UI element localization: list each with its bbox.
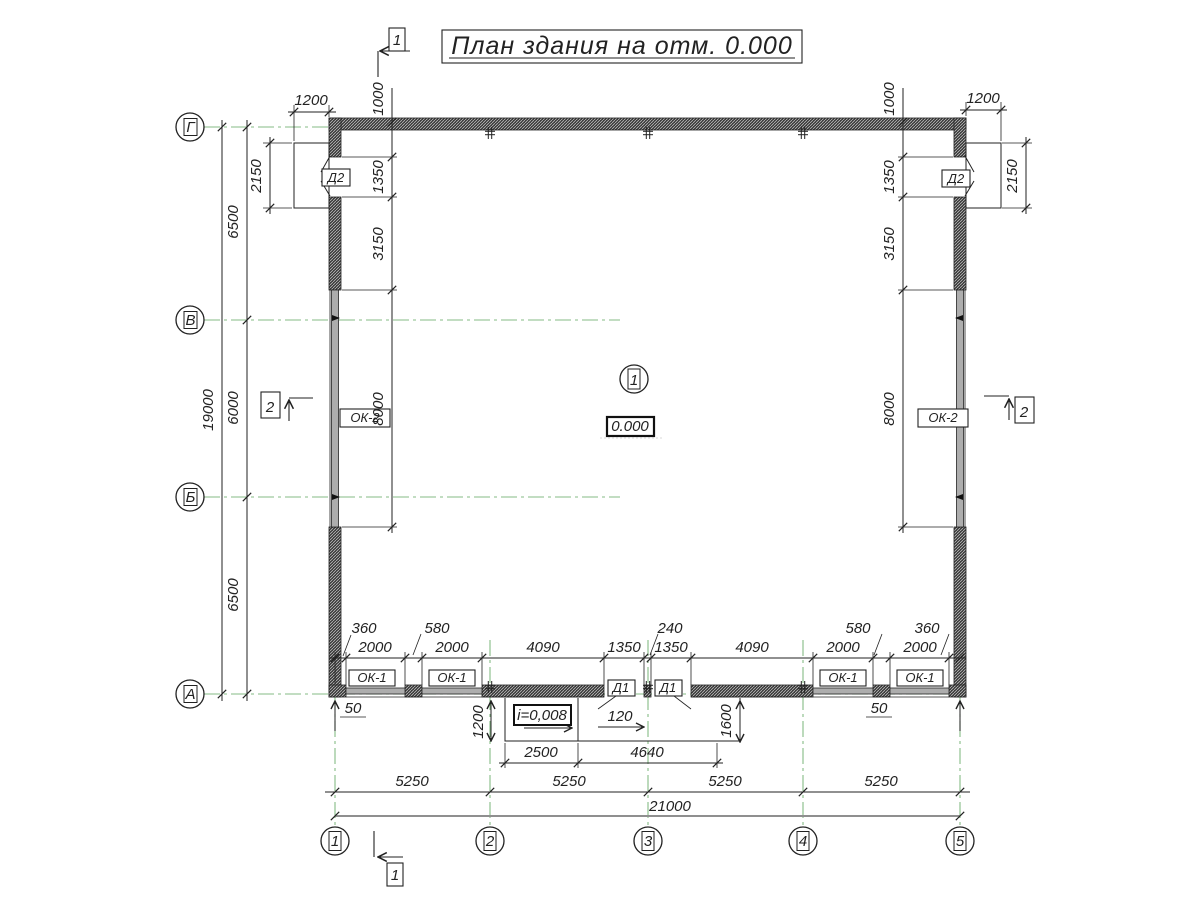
dim-door2-height-left: 2150 [248,159,265,194]
section-1-mark-bottom: 1 [391,867,399,884]
dim-leaf-width-left: 1200 [294,92,328,109]
axis-row-v: В [185,312,195,329]
window-label-ok1-4: ОК-1 [905,670,934,685]
section-2-mark-left: 2 [265,399,275,416]
dim-bottom-1: 2000 [357,639,392,656]
dim-row-spacing-2: 6000 [225,391,242,425]
dim-axis-spacing-2: 5250 [552,773,586,790]
window-label-ok2-right: ОК-2 [928,410,958,425]
dim-door2-height-right: 2150 [1004,159,1021,194]
dim-row-spacing-1: 6500 [225,205,242,239]
window-axis-marks [332,315,963,500]
dim-pier-3: 240 [656,620,683,637]
column-marks [485,127,808,693]
section-1-mark-top: 1 [393,32,401,49]
door-label-d2-right: Д2 [946,171,965,186]
axis-col-2: 2 [485,833,495,850]
axis-col-1: 1 [331,833,339,850]
dim-pier-1: 360 [351,620,377,637]
dim-bottom-7: 2000 [825,639,860,656]
axis-grid-lines [204,127,965,826]
dim-pier-4: 580 [845,620,871,637]
dim-overall-height: 19000 [200,388,217,430]
dim-side-pier-left: 3150 [370,227,387,261]
dim-side-window-left: 8000 [370,392,387,426]
dim-door2-opening-left: 1350 [370,160,387,194]
dim-apron-w1: 2500 [523,744,558,761]
axis-col-3: 3 [644,833,653,850]
dim-row-spacing-3: 6500 [225,578,242,612]
axis-row-b: Б [186,489,196,506]
door-label-d1-left: Д1 [611,680,629,695]
dim-bottom-2: 2000 [434,639,469,656]
dim-bottom-8: 2000 [902,639,937,656]
dim-axis-spacing-3: 5250 [708,773,742,790]
dim-apron-depth-1: 1200 [470,705,487,739]
dim-edge-offset-right: 50 [871,700,888,717]
walls [329,118,966,697]
dim-bottom-5: 1350 [654,639,688,656]
elevation-value: 0.000 [611,418,649,435]
window-label-ok1-2: ОК-1 [437,670,466,685]
dim-bottom-4: 1350 [607,639,641,656]
dim-door2-opening-right: 1350 [881,160,898,194]
page-title: План здания на отм. 0.000 [451,32,793,60]
dim-apron-depth-2: 1600 [718,704,735,738]
axis-col-4: 4 [799,833,807,850]
dim-side-window-right: 8000 [881,392,898,426]
dim-axis-spacing-1: 5250 [395,773,429,790]
window-label-ok1-1: ОК-1 [357,670,386,685]
dim-pier-2: 580 [424,620,450,637]
axis-col-5: 5 [956,833,965,850]
axis-bubbles [176,113,974,855]
dim-edge-offset-left: 50 [345,700,362,717]
dim-pier-half: 120 [607,708,633,725]
floor-plan-svg: 1 1 2 2 ОК-1 ОК-1 ОК-1 ОК-1 ОК-2 ОК-2 Д1… [0,0,1200,900]
door-label-d2-left: Д2 [326,170,345,185]
slope-value: i=0,008 [517,707,567,724]
drawing-sheet: 1 1 2 2 ОК-1 ОК-1 ОК-1 ОК-1 ОК-2 ОК-2 Д1… [0,0,1200,900]
dimension-texts: 19000 6500 6000 6500 2150 2150 1200 1200… [200,82,1021,815]
window-label-ok1-3: ОК-1 [828,670,857,685]
dim-apron-w2: 4640 [630,744,664,761]
door-label-d1-right: Д1 [658,680,676,695]
dim-overall-width: 21000 [648,798,691,815]
dim-axis-spacing-4: 5250 [864,773,898,790]
dim-bottom-6: 4090 [735,639,769,656]
dim-bottom-3: 4090 [526,639,560,656]
section-2-mark-right: 2 [1019,404,1029,421]
dim-side-pier-right: 3150 [881,227,898,261]
axis-row-a: А [184,686,195,703]
dim-leaf-width-right: 1200 [966,90,1000,107]
dim-door2-offset-right: 1000 [881,82,898,116]
room-number: 1 [630,372,638,389]
dim-pier-5: 360 [914,620,940,637]
dim-door2-offset-left: 1000 [370,82,387,116]
